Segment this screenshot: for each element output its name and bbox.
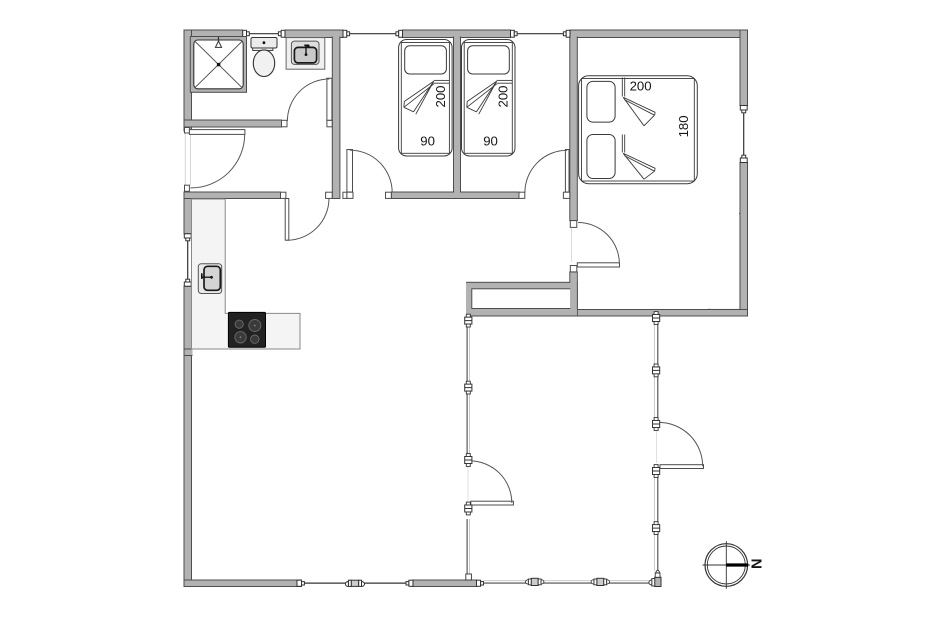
svg-text:200: 200 xyxy=(433,85,448,107)
svg-text:180: 180 xyxy=(676,115,691,137)
svg-text:200: 200 xyxy=(496,85,511,107)
svg-text:90: 90 xyxy=(483,134,498,149)
svg-text:90: 90 xyxy=(420,134,435,149)
svg-text:200: 200 xyxy=(630,79,652,94)
svg-text:N: N xyxy=(748,559,764,569)
